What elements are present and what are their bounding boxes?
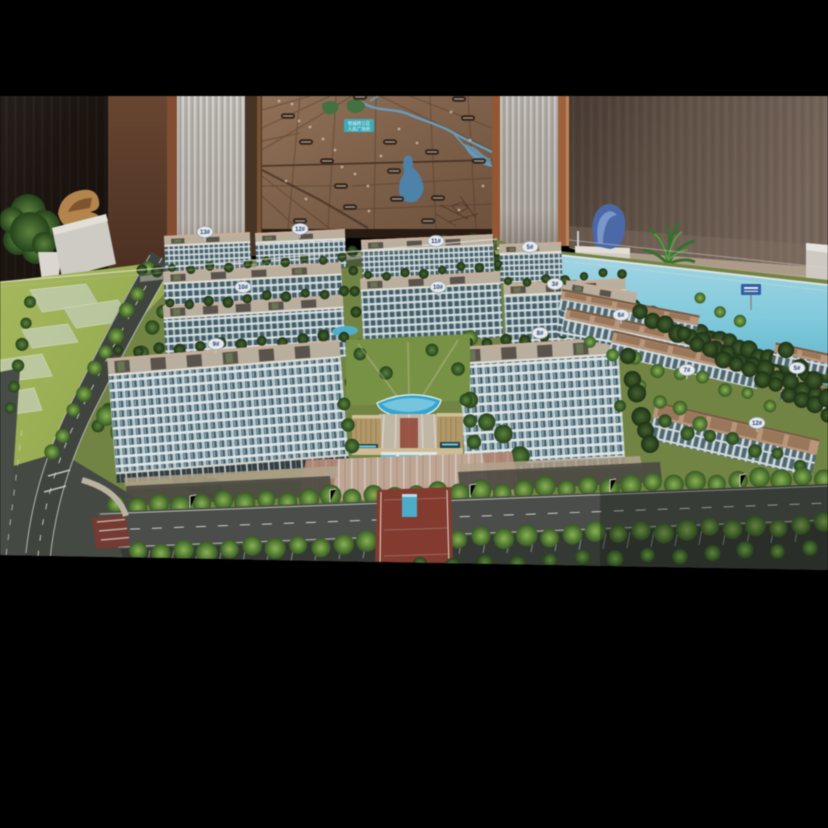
svg-text:11#: 11# — [431, 239, 441, 245]
svg-text:12#: 12# — [295, 227, 306, 233]
svg-text:10#: 10# — [238, 285, 249, 291]
svg-text:7#: 7# — [684, 368, 691, 374]
svg-text:6#: 6# — [618, 313, 625, 319]
svg-text:5#: 5# — [527, 245, 534, 251]
svg-text:人民广场旁: 人民广场旁 — [348, 126, 371, 133]
svg-text:12#: 12# — [752, 421, 763, 427]
svg-text:3#: 3# — [552, 282, 559, 288]
svg-text:8#: 8# — [537, 331, 544, 337]
svg-text:5#: 5# — [794, 366, 801, 372]
svg-text:10#: 10# — [433, 285, 444, 291]
svg-text:13#: 13# — [200, 230, 211, 236]
svg-text:9#: 9# — [213, 342, 220, 348]
